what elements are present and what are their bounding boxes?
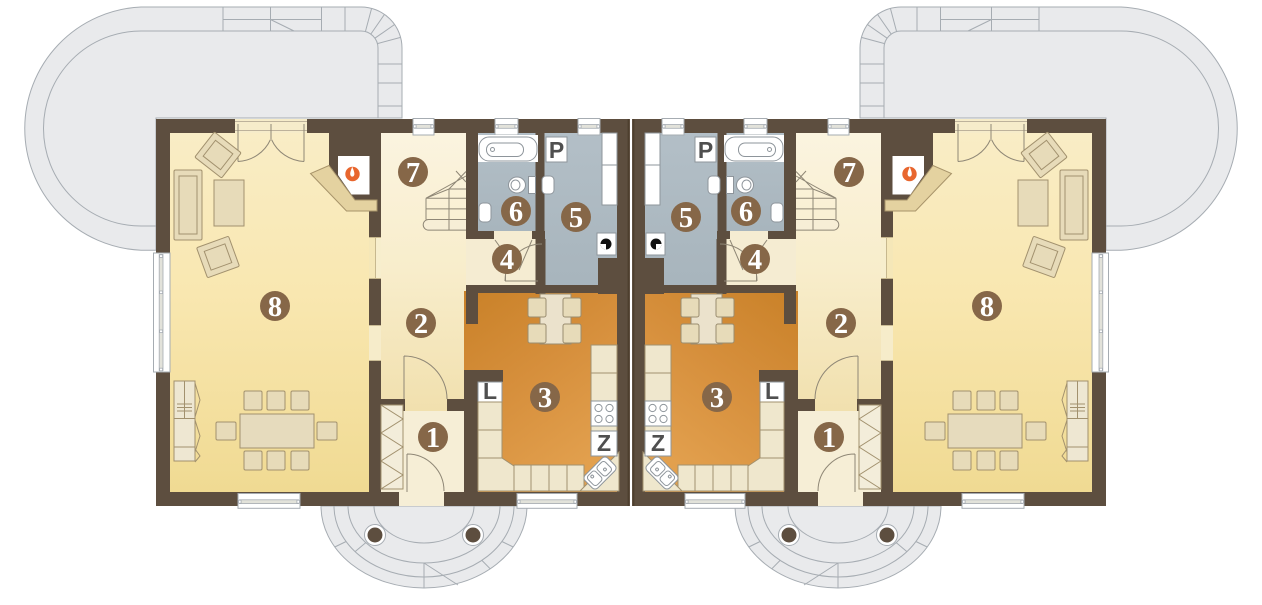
svg-text:L: L <box>483 378 497 404</box>
svg-text:4: 4 <box>500 245 514 276</box>
svg-text:4: 4 <box>748 245 762 276</box>
svg-text:1: 1 <box>426 423 440 454</box>
svg-text:2: 2 <box>414 309 428 340</box>
svg-text:7: 7 <box>842 158 856 189</box>
svg-text:6: 6 <box>509 197 523 228</box>
svg-text:5: 5 <box>569 203 583 234</box>
svg-text:L: L <box>765 378 779 404</box>
svg-text:P: P <box>549 137 564 163</box>
svg-text:8: 8 <box>980 292 994 323</box>
svg-text:2: 2 <box>834 309 848 340</box>
svg-text:3: 3 <box>710 383 724 414</box>
svg-text:Z: Z <box>651 430 665 456</box>
svg-text:P: P <box>698 137 713 163</box>
svg-text:1: 1 <box>822 423 836 454</box>
svg-text:6: 6 <box>739 197 753 228</box>
svg-text:8: 8 <box>268 292 282 323</box>
svg-text:5: 5 <box>679 203 693 234</box>
svg-text:3: 3 <box>538 383 552 414</box>
svg-text:Z: Z <box>597 430 611 456</box>
svg-text:7: 7 <box>406 158 420 189</box>
